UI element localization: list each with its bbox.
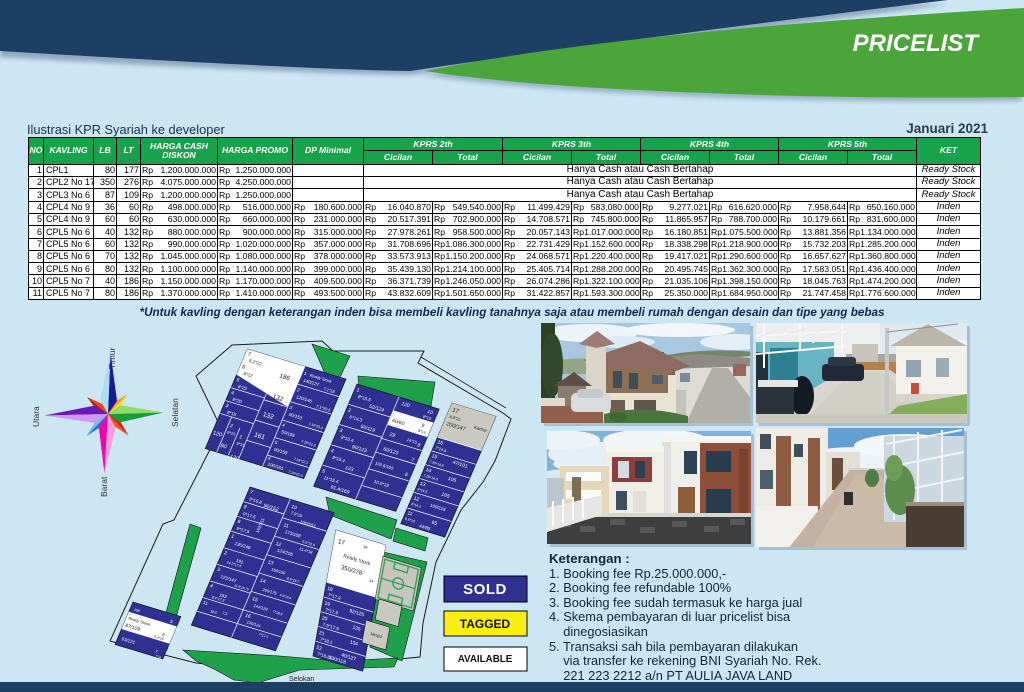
svg-text:Timur: Timur [107, 347, 117, 369]
svg-text:AVAILABLE: AVAILABLE [458, 654, 513, 665]
svg-text:Utara: Utara [31, 406, 41, 427]
svg-text:120: 120 [229, 454, 240, 462]
svg-text:SOLD: SOLD [463, 581, 507, 598]
svg-text:Barat: Barat [99, 476, 109, 497]
svg-text:TAGGED: TAGGED [460, 617, 511, 631]
svg-text:Selatan: Selatan [170, 398, 180, 427]
